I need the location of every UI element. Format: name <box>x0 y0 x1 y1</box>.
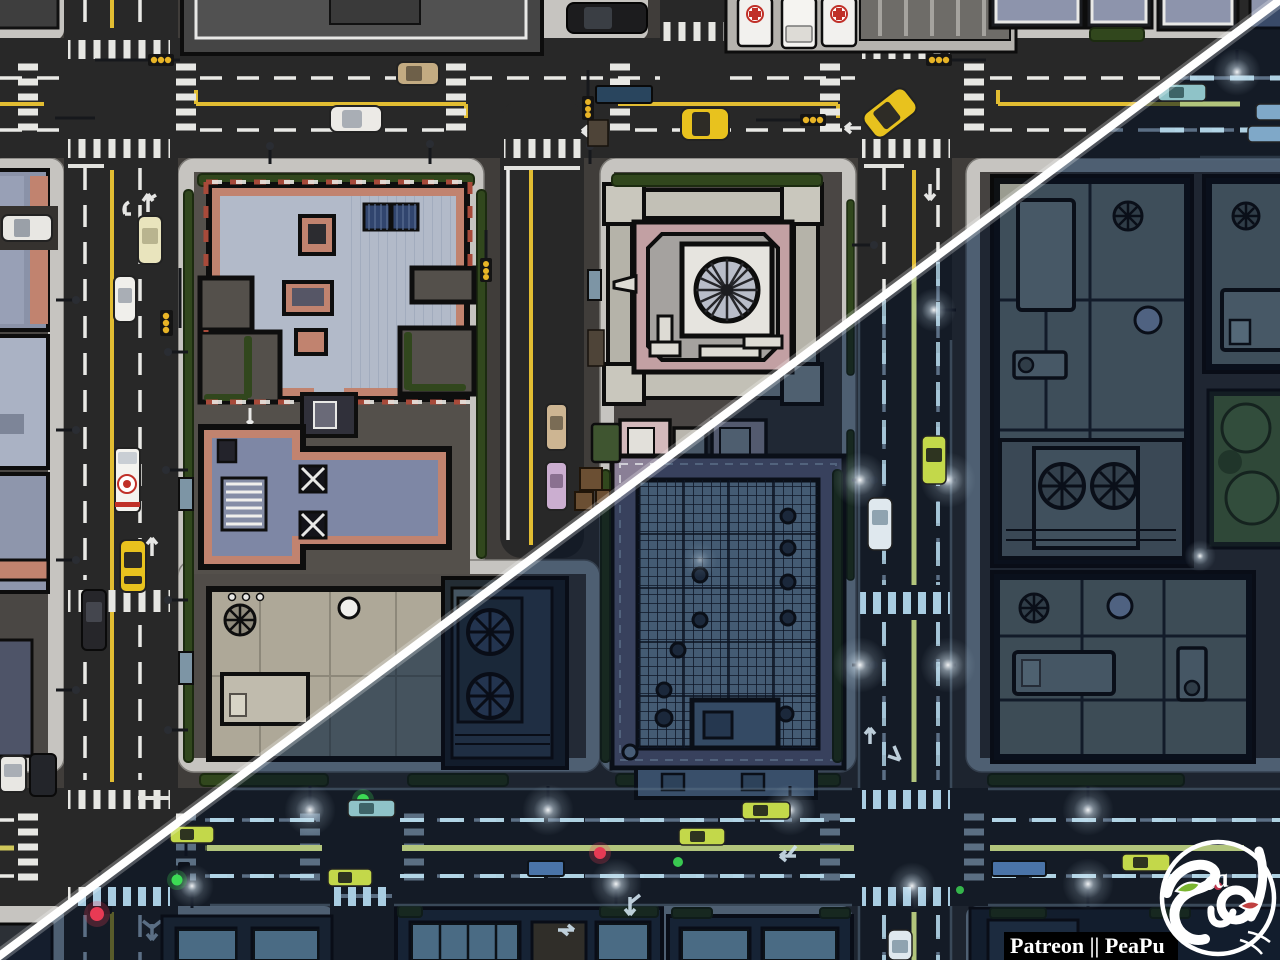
svg-text:Patreon || PeaPu: Patreon || PeaPu <box>1010 933 1165 958</box>
svg-text:ea: ea <box>1200 862 1230 896</box>
